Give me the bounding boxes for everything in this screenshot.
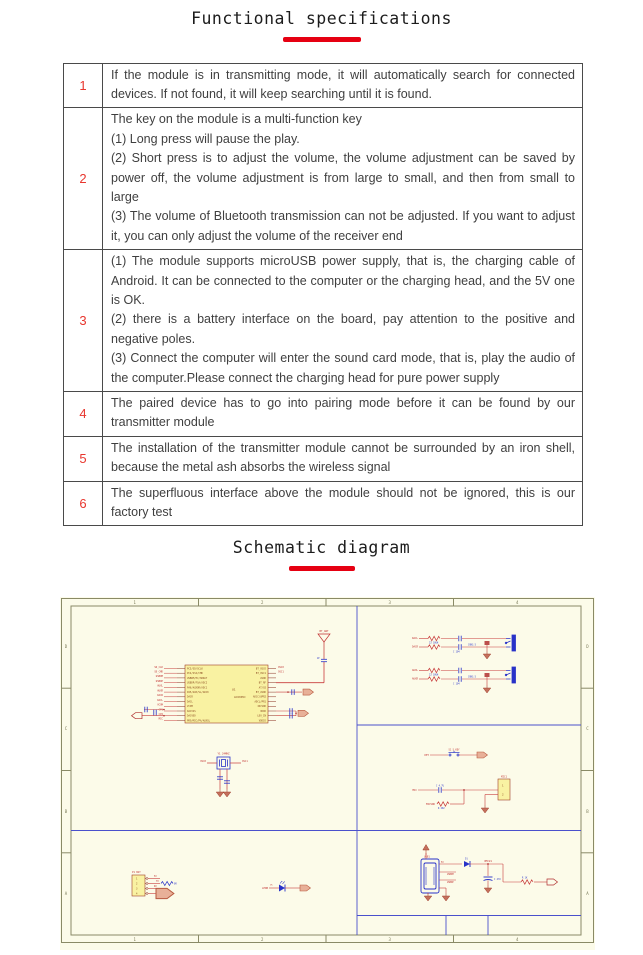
diode-icon: D1 [464, 857, 470, 867]
svg-text:OSC1: OSC1 [242, 760, 248, 763]
svg-text:USBDM/PC/SBDAT: USBDM/PC/SBDAT [187, 677, 208, 680]
row-text: The paired device has to go into pairing… [103, 392, 583, 437]
svg-text:DACR: DACR [187, 696, 193, 699]
spec-table: 1 If the module is in transmitting mode,… [63, 63, 583, 527]
schematic-title-underline [289, 566, 355, 571]
svg-text:C 104: C 104 [453, 650, 460, 653]
table-row: 5 The installation of the transmitter mo… [64, 436, 583, 481]
row-number: 1 [64, 63, 103, 108]
svg-text:D: D [65, 644, 68, 649]
antenna-icon [318, 634, 330, 659]
electrolytic-cap-icon: C 47U [484, 877, 502, 881]
svg-text:B: B [586, 809, 589, 814]
svg-text:C: C [65, 726, 68, 731]
row-text: The installation of the transmitter modu… [103, 436, 583, 481]
svg-text:USBDM: USBDM [447, 873, 454, 876]
svg-text:5V: 5V [441, 861, 444, 864]
mic-connector [498, 779, 510, 800]
jack-circuit-aux: AUXL AUXR 22 10UH C 104 CON3.5 [412, 667, 516, 693]
svg-text:BT_OSC1: BT_OSC1 [256, 672, 267, 675]
svg-text:1P: 1P [317, 657, 320, 660]
row-text: The superfluous interface above the modu… [103, 481, 583, 526]
spec-title-underline [283, 37, 361, 42]
led-icon [279, 881, 285, 892]
svg-text:PA6/AUXDR/ADC1: PA6/AUXDR/ADC1 [187, 686, 208, 689]
svg-text:CON3.5: CON3.5 [468, 675, 477, 678]
svg-text:B: B [65, 809, 68, 814]
svg-text:1: 1 [133, 937, 136, 942]
svg-text:P1 BAT: P1 BAT [132, 871, 141, 874]
battery-connector [132, 875, 145, 896]
svg-text:DACL: DACL [157, 699, 163, 702]
svg-text:CON3.5: CON3.5 [468, 643, 477, 646]
port-left-icon [132, 713, 143, 719]
svg-text:AC6905C: AC6905C [234, 695, 246, 699]
audio-jack-icon [505, 667, 515, 683]
svg-text:AUXR: AUXR [157, 689, 163, 692]
svg-text:DACVDD: DACVDD [187, 715, 196, 718]
svg-text:AVDD: AVDD [260, 677, 266, 680]
usb-connector-icon [421, 859, 439, 893]
row-number: 2 [64, 108, 103, 250]
svg-text:DACVSS: DACVSS [187, 710, 196, 713]
table-row: 3 (1) The module supports microUSB power… [64, 250, 583, 392]
svg-text:BT_ANT: BT_ANT [319, 629, 329, 633]
ic-u1: U1 AC6905C PC5/SD/SCLKPC4/SSI/CMDUSBDM/P… [154, 665, 284, 723]
svg-text:1K: 1K [270, 884, 273, 886]
svg-text:BT_RF: BT_RF [259, 682, 267, 685]
svg-text:0R: 0R [174, 882, 177, 885]
svg-text:OSC0: OSC0 [200, 760, 206, 763]
schematic-title: Schematic diagram [233, 537, 410, 559]
svg-text:2: 2 [261, 600, 264, 605]
svg-text:USBDP: USBDP [447, 881, 454, 884]
svg-text:BT_OSCO: BT_OSCO [256, 667, 267, 670]
svg-text:R 1K: R 1K [522, 876, 528, 879]
svg-text:SD_CLK: SD_CLK [154, 666, 163, 669]
svg-text:22 10UH: 22 10UH [429, 641, 439, 644]
battery-connector-circuit: P1 BAT 1 2 3 4 5V TX 0R RX [132, 871, 177, 899]
svg-text:C 104: C 104 [453, 682, 460, 685]
jack-pad [485, 673, 490, 677]
ic-right-rf-filter [276, 689, 314, 718]
svg-text:VCOM: VCOM [187, 705, 193, 708]
svg-text:3: 3 [388, 600, 391, 605]
antenna-circuit: BT_ANT 1P [276, 629, 330, 683]
led-circuit: LEDB 1K [262, 881, 311, 892]
section-dividers [71, 606, 581, 935]
schematic-svg: 1234 1234 DCBA DCBA U1 AC6905C PC5/SD/SC… [60, 597, 595, 950]
svg-text:R 2K2: R 2K2 [438, 807, 445, 810]
svg-text:USBDP: USBDP [156, 680, 164, 683]
svg-text:VDDO: VDDO [260, 710, 266, 713]
svg-text:PC5/SD/SCLK: PC5/SD/SCLK [187, 667, 203, 670]
row-text: The key on the module is a multi-functio… [103, 108, 583, 250]
svg-text:MIC: MIC [412, 788, 417, 792]
svg-text:U1: U1 [232, 687, 236, 691]
svg-text:3: 3 [388, 937, 391, 942]
svg-text:IOCVDD: IOCVDD [257, 705, 266, 708]
spec-title: Functional specifications [191, 8, 452, 30]
svg-text:ADCL/PR1: ADCL/PR1 [254, 700, 266, 703]
jack-pad [485, 641, 490, 645]
row-text: (1) The module supports microUSB power s… [103, 250, 583, 392]
svg-text:RX: RX [154, 885, 157, 888]
row-number: 6 [64, 481, 103, 526]
svg-text:KEY: KEY [424, 753, 429, 757]
svg-text:1: 1 [133, 600, 136, 605]
svg-text:AUXR: AUXR [412, 676, 419, 680]
svg-text:4: 4 [516, 600, 519, 605]
key-button-circuit: KEY S1 S_KEY [424, 748, 487, 758]
svg-text:A: A [586, 891, 589, 896]
svg-text:5V: 5V [154, 875, 157, 878]
svg-text:AT/O2: AT/O2 [259, 686, 267, 689]
svg-text:VMCU1: VMCU1 [484, 859, 492, 863]
svg-text:USBDM: USBDM [156, 675, 164, 678]
usb-power-circuit: USB1 5V USBDM USBDP D1 VMCU1 C 47U [421, 844, 558, 901]
svg-text:DACL: DACL [187, 700, 193, 703]
svg-text:DACR: DACR [412, 644, 419, 648]
row-number: 3 [64, 250, 103, 392]
svg-text:PC4/SSI/CMD: PC4/SSI/CMD [187, 672, 203, 675]
schematic-image: 1234 1234 DCBA DCBA U1 AC6905C PC5/SD/SC… [60, 597, 595, 950]
row-number: 5 [64, 436, 103, 481]
svg-text:D: D [586, 644, 589, 649]
svg-text:BT_AVDD: BT_AVDD [256, 691, 267, 694]
schematic-title-block: Schematic diagram [0, 537, 643, 571]
svg-text:4: 4 [516, 937, 519, 942]
svg-text:VCOM: VCOM [157, 704, 163, 707]
svg-text:C 4.7U: C 4.7U [436, 784, 445, 787]
svg-text:PRO/MIC/PA/AUXSL: PRO/MIC/PA/AUXSL [187, 719, 211, 722]
table-row: 2 The key on the module is a multi-funct… [64, 108, 583, 250]
table-row: 4 The paired device has to go into pairi… [64, 392, 583, 437]
jack-circuit-dac: DACL DACR 22 10UH C 104 CON3.5 [412, 635, 516, 659]
svg-text:C 47U: C 47U [494, 878, 501, 881]
svg-text:MIC1: MIC1 [501, 774, 508, 778]
svg-text:Y1 24MHZ: Y1 24MHZ [217, 751, 230, 755]
svg-text:OSC0: OSC0 [278, 666, 284, 669]
crystal-circuit: Y1 24MHZ OSC0 OSC1 [200, 751, 248, 797]
svg-text:VDDIO: VDDIO [259, 719, 267, 722]
svg-text:LEDB: LEDB [262, 886, 269, 890]
table-row: 1 If the module is in transmitting mode,… [64, 63, 583, 108]
svg-text:MICVDD: MICVDD [426, 802, 436, 806]
svg-text:22 10UH: 22 10UH [429, 673, 439, 676]
svg-text:2: 2 [261, 937, 264, 942]
svg-text:TX: TX [156, 880, 159, 883]
svg-text:MIC: MIC [159, 718, 164, 721]
row-number: 4 [64, 392, 103, 437]
svg-text:AUXL: AUXL [412, 668, 419, 672]
svg-text:SD_CMD: SD_CMD [154, 670, 163, 673]
svg-text:A: A [65, 891, 68, 896]
svg-text:D1: D1 [465, 857, 468, 860]
svg-text:PA5/AUX/SL/ADC0: PA5/AUX/SL/ADC0 [187, 691, 209, 694]
svg-text:C: C [586, 726, 589, 731]
svg-text:OSC1: OSC1 [278, 670, 284, 673]
crystal-icon [220, 759, 228, 766]
spec-title-block: Functional specifications [0, 8, 643, 42]
audio-jack-icon [505, 635, 515, 651]
svg-text:ADCC/UPR2: ADCC/UPR2 [253, 696, 267, 699]
table-row: 6 The superfluous interface above the mo… [64, 481, 583, 526]
svg-text:LDO_IN: LDO_IN [257, 715, 266, 718]
svg-text:DACR: DACR [157, 694, 163, 697]
mic-circuit: MIC C 4.7U MICVDD R 2K2 MIC1 1 2 [412, 774, 510, 813]
svg-text:USB1: USB1 [424, 855, 430, 858]
button-icon [449, 751, 460, 756]
svg-text:AUXL: AUXL [157, 685, 163, 688]
svg-text:USBDP/FSA/ADC2: USBDP/FSA/ADC2 [187, 682, 208, 685]
svg-text:DACL: DACL [412, 636, 419, 640]
row-text: If the module is in transmitting mode, i… [103, 63, 583, 108]
